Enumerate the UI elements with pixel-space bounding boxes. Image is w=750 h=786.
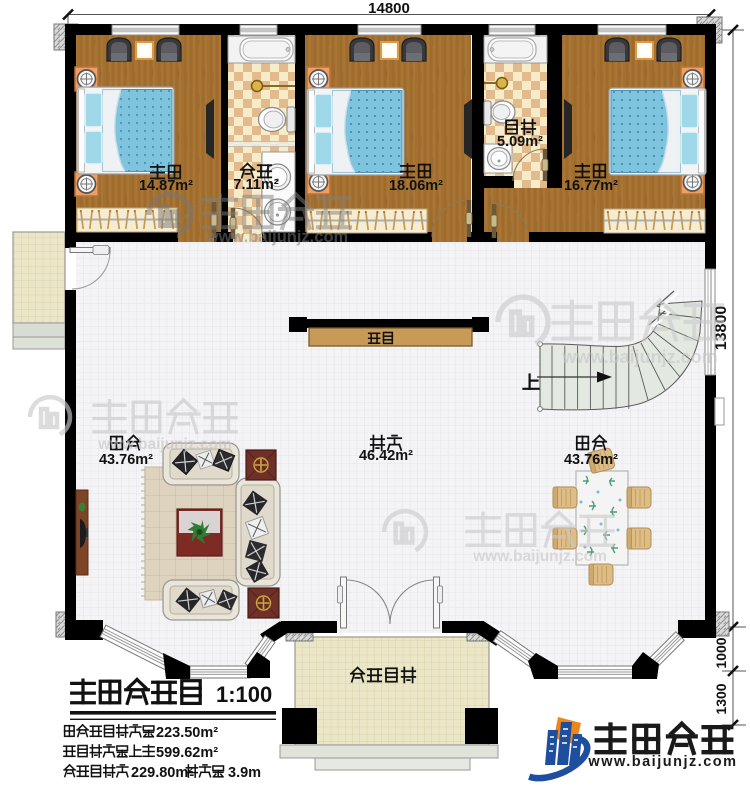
svg-text:18.06m²: 18.06m² [389, 178, 443, 194]
svg-text:14.87m²: 14.87m² [139, 178, 193, 194]
svg-text:16.77m²: 16.77m² [564, 178, 618, 194]
svg-text:14800: 14800 [368, 0, 410, 17]
svg-text:1:100: 1:100 [216, 682, 272, 707]
svg-text:1000: 1000 [713, 637, 729, 668]
svg-text:229.80m²: 229.80m² [131, 765, 193, 781]
svg-text:7.11m²: 7.11m² [233, 177, 278, 193]
svg-text:5.09m²: 5.09m² [497, 134, 543, 150]
svg-text:3.9m: 3.9m [228, 765, 261, 781]
svg-text:1300: 1300 [713, 683, 729, 714]
svg-text:www.baijunjz.com: www.baijunjz.com [587, 754, 737, 770]
svg-text:43.76m²: 43.76m² [99, 452, 153, 468]
svg-text:www.baijunjz.com: www.baijunjz.com [205, 228, 348, 246]
svg-text:46.42m²: 46.42m² [359, 448, 413, 464]
svg-text:223.50m²: 223.50m² [156, 725, 218, 741]
svg-text:www.baijunjz.com: www.baijunjz.com [97, 436, 232, 453]
svg-text:43.76m²: 43.76m² [564, 452, 618, 468]
svg-text:www.baijunjz.com: www.baijunjz.com [561, 347, 717, 367]
svg-text:www.baijunjz.com: www.baijunjz.com [472, 548, 607, 565]
svg-text:599.62m²: 599.62m² [156, 745, 218, 761]
